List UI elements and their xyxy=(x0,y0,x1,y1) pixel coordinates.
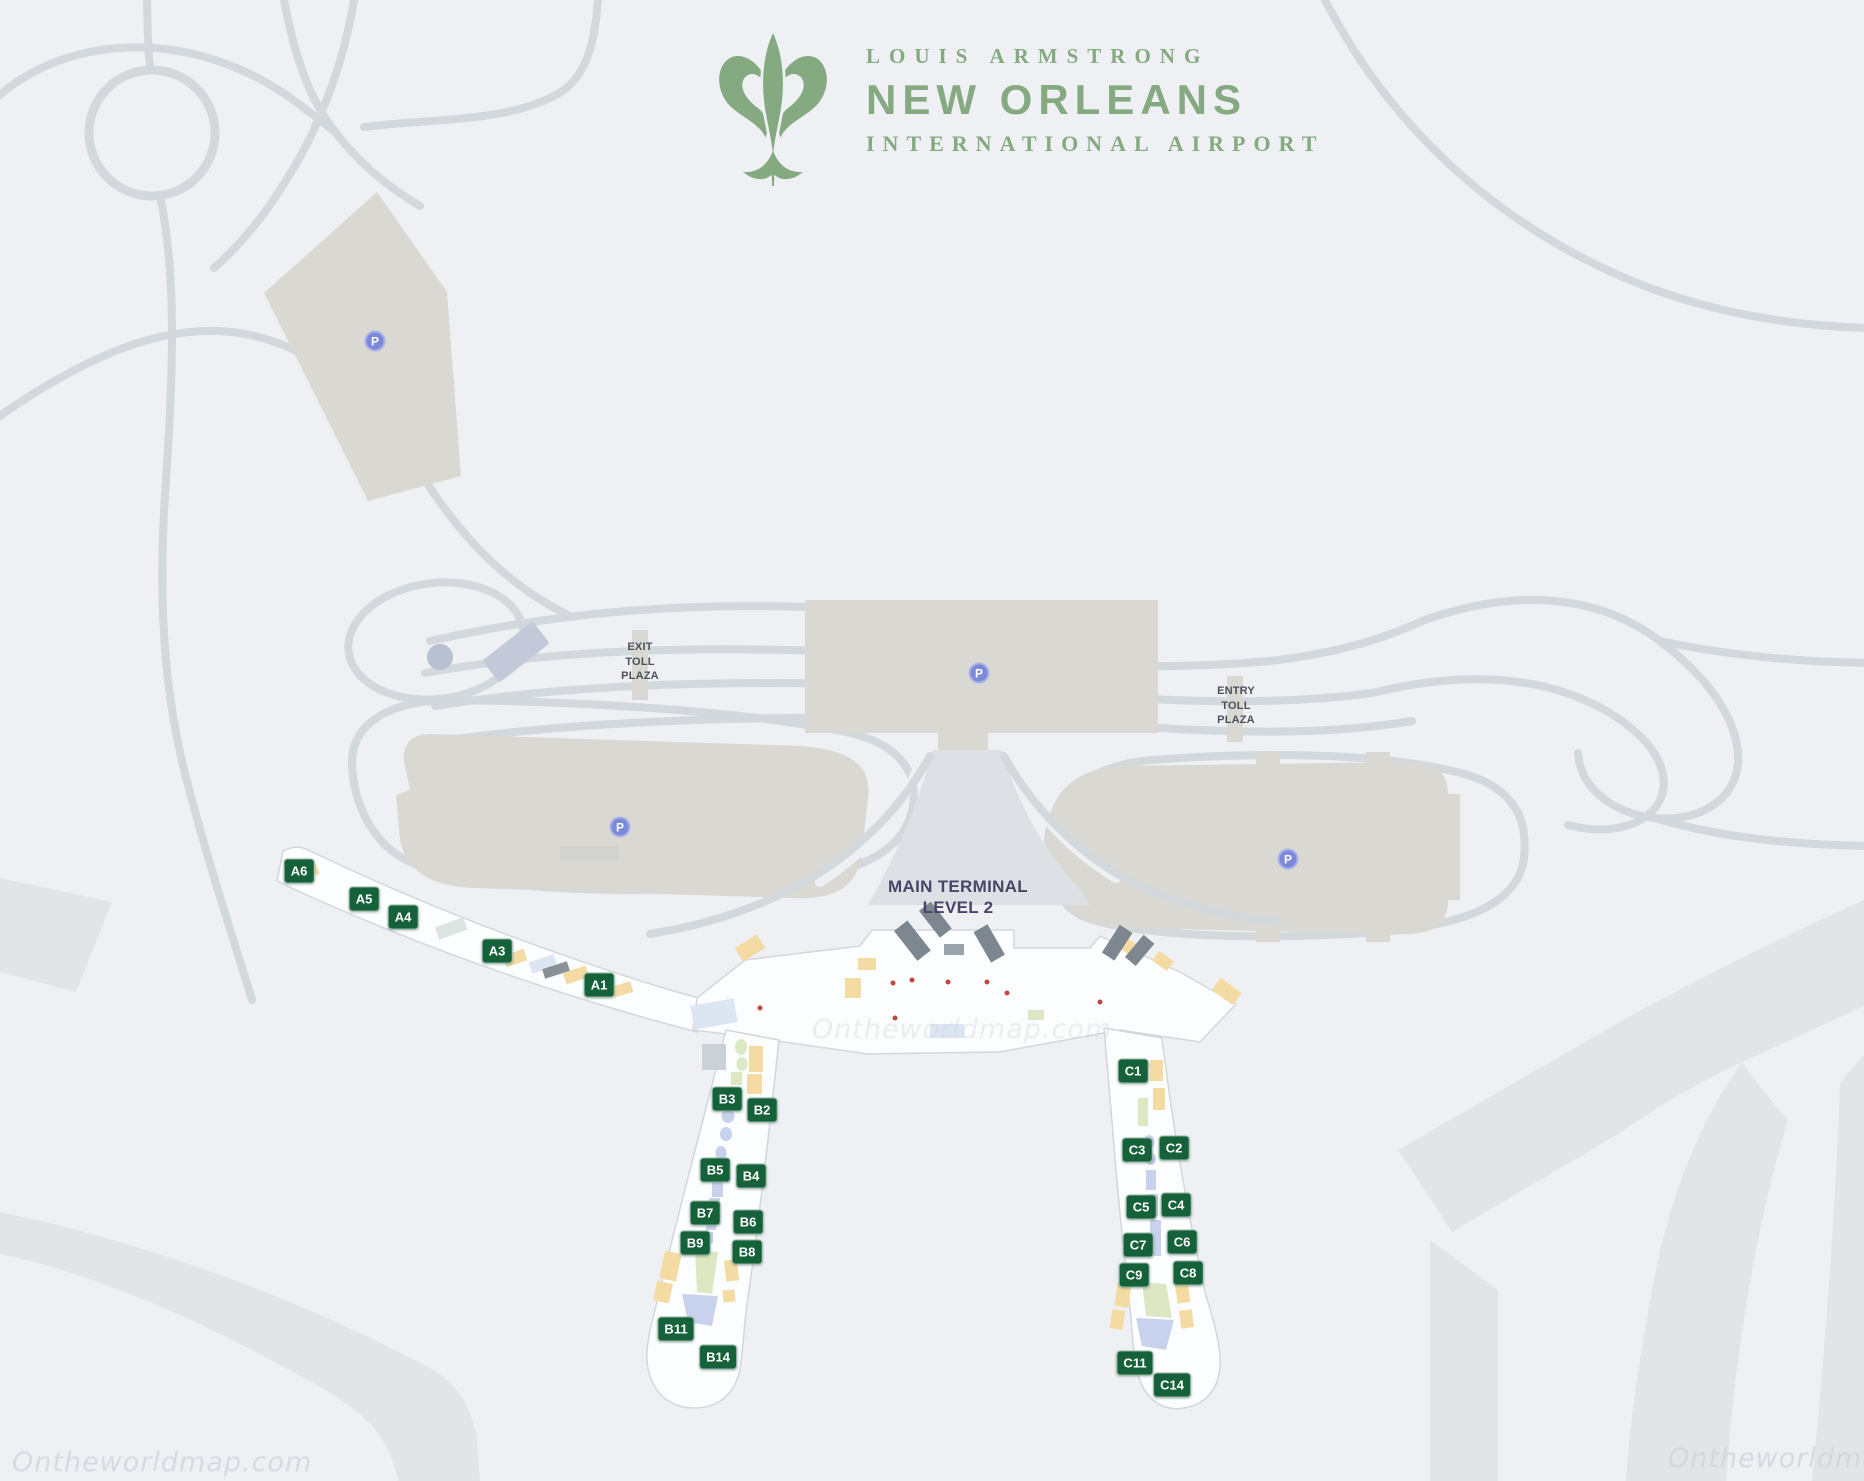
entry-toll-plaza-label: ENTRY TOLL PLAZA xyxy=(1217,684,1255,728)
gate-badge-b5: B5 xyxy=(700,1158,731,1183)
fleur-de-lis-icon xyxy=(716,28,830,186)
watermark: Ontheworldmap.com xyxy=(12,1447,312,1478)
logo-line-2: NEW ORLEANS xyxy=(866,76,1324,124)
exit-toll-plaza-label: EXIT TOLL PLAZA xyxy=(621,640,659,684)
gate-badge-c3: C3 xyxy=(1122,1138,1153,1163)
terminal-buildings xyxy=(277,847,1236,1408)
gate-badge-c2: C2 xyxy=(1159,1136,1190,1161)
parking-lot-east xyxy=(1046,762,1460,934)
gate-badge-b3: B3 xyxy=(712,1087,743,1112)
gate-badge-a5: A5 xyxy=(349,887,380,912)
gate-badge-a6: A6 xyxy=(284,859,315,884)
main-terminal-label: MAIN TERMINAL LEVEL 2 xyxy=(888,876,1028,919)
parking-icon: P xyxy=(969,663,990,684)
watermark: Ontheworldmap.com xyxy=(1668,1443,1864,1474)
gate-badge-c14: C14 xyxy=(1153,1373,1191,1398)
parking-lot-northwest xyxy=(264,192,461,501)
gate-badge-a3: A3 xyxy=(482,939,513,964)
gate-badge-a1: A1 xyxy=(584,973,615,998)
airport-logo-text: LOUIS ARMSTRONG NEW ORLEANS INTERNATIONA… xyxy=(866,28,1324,157)
logo-line-1: LOUIS ARMSTRONG xyxy=(866,44,1324,69)
cell-lot-circle xyxy=(427,644,453,670)
gate-badge-c9: C9 xyxy=(1119,1263,1150,1288)
airport-map: LOUIS ARMSTRONG NEW ORLEANS INTERNATIONA… xyxy=(0,0,1864,1481)
gate-badge-b8: B8 xyxy=(732,1240,763,1265)
gate-badge-c8: C8 xyxy=(1173,1261,1204,1286)
gate-badge-b6: B6 xyxy=(733,1210,764,1235)
gate-badge-c6: C6 xyxy=(1167,1230,1198,1255)
gate-badge-c11: C11 xyxy=(1116,1351,1153,1376)
airport-logo: LOUIS ARMSTRONG NEW ORLEANS INTERNATIONA… xyxy=(716,28,1324,186)
logo-line-3: INTERNATIONAL AIRPORT xyxy=(866,131,1324,157)
gate-badge-b4: B4 xyxy=(736,1164,767,1189)
watermark: Ontheworldmap.com xyxy=(812,1014,1112,1045)
parking-areas xyxy=(264,192,1460,942)
airport-map-canvas xyxy=(0,0,1864,1481)
parking-icon: P xyxy=(365,331,386,352)
parking-icon: P xyxy=(610,817,631,838)
gate-badge-c4: C4 xyxy=(1161,1193,1192,1218)
gate-badge-a4: A4 xyxy=(388,905,419,930)
gate-badge-c5: C5 xyxy=(1126,1195,1157,1220)
parking-lot-west xyxy=(396,734,868,898)
parking-icon: P xyxy=(1278,849,1299,870)
gate-badge-b11: B11 xyxy=(657,1317,694,1342)
gate-badge-c7: C7 xyxy=(1123,1233,1154,1258)
gate-badge-b14: B14 xyxy=(699,1345,737,1370)
gate-badge-b9: B9 xyxy=(680,1231,711,1256)
gate-badge-b7: B7 xyxy=(690,1201,721,1226)
gate-badge-c1: C1 xyxy=(1118,1059,1149,1084)
gate-badge-b2: B2 xyxy=(747,1098,778,1123)
